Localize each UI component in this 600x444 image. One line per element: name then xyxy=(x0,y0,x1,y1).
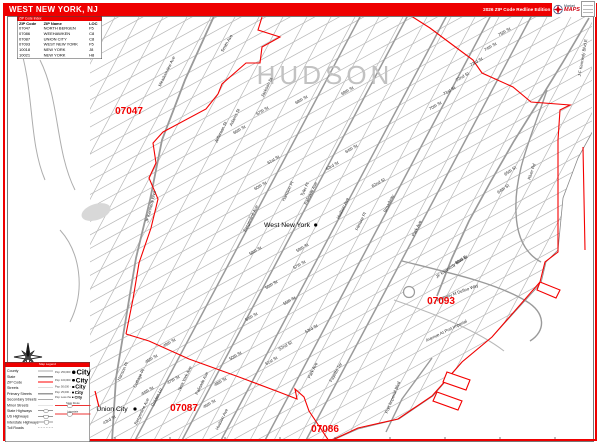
route-line-swatch xyxy=(55,414,91,415)
legend-line-item: State Highways xyxy=(7,408,53,414)
street-label: JF Kennedy Blvd xyxy=(144,190,157,223)
zip-code-label: 07087 xyxy=(170,403,198,414)
legend-city-item: Pop: Less than 25,000City xyxy=(55,395,91,400)
us-hwy-line-swatch xyxy=(38,416,53,417)
legend-line-label: US Highways xyxy=(7,414,29,419)
street-label: Hudson Ave xyxy=(214,407,229,430)
minor-line-swatch xyxy=(38,405,53,406)
city-dot-icon xyxy=(72,392,74,394)
legend-line-item: Interstate Highways xyxy=(7,419,53,425)
publisher-logo: Market MAPS xyxy=(552,1,596,17)
legend-route-item: State Route xyxy=(55,402,91,408)
population-range-label: Pop: 100,000 - 249,999 xyxy=(55,379,71,382)
legend-city-item: Pop: 100,000 - 249,999City xyxy=(55,377,91,385)
county-label: HUDSON xyxy=(257,60,394,90)
zip-table-cell: NEW YORK xyxy=(42,53,87,58)
population-range-label: Pop: 25,000 - 49,999 xyxy=(55,391,71,394)
zip-table-row: 10021NEW YORKH8 xyxy=(18,53,102,58)
toll-line-swatch xyxy=(38,428,53,429)
street-label: 49th St xyxy=(162,337,177,349)
street-label: J F Kennedy Blvd E xyxy=(577,39,589,77)
legend-line-label: County xyxy=(7,369,18,374)
street-label: 61st St xyxy=(266,154,281,165)
zip-code-wall-map-page: HUDSON75th St74th St73rd St72nd St71st S… xyxy=(0,0,600,444)
interstate-line-swatch xyxy=(39,422,53,423)
secondary-line-swatch xyxy=(38,399,53,400)
street-label: 58th St xyxy=(248,245,263,257)
street-label: 68th St xyxy=(294,94,309,106)
city-dot-icon xyxy=(72,397,74,399)
zip-code-label: 07047 xyxy=(115,106,143,117)
street-label: River Rd xyxy=(527,162,537,180)
population-range-label: Pop: 250,000 and Above xyxy=(55,371,71,374)
legend-line-item: Toll Roads xyxy=(7,425,53,431)
street-label: Filmore Pl xyxy=(354,212,367,232)
street-label: 52nd St xyxy=(278,339,294,351)
city-dot-icon xyxy=(133,407,136,410)
county-line-swatch xyxy=(38,370,53,371)
page-title: WEST NEW YORK, NJ xyxy=(9,3,98,16)
legend-line-label: ZIP Code xyxy=(7,380,22,385)
city-label: Union City xyxy=(96,406,128,413)
street-label: 62nd St xyxy=(371,176,387,188)
globe-star-icon xyxy=(553,3,563,16)
street-label: Park Ave xyxy=(307,361,319,379)
street-label: Fayette Ter xyxy=(328,361,343,383)
street-label: 54th St xyxy=(244,311,259,323)
legend-line-label: Secondary Streets xyxy=(7,397,37,402)
street-label: Smith Ave xyxy=(220,33,234,53)
street-label: 50th St xyxy=(228,350,243,362)
publisher-info-box xyxy=(581,1,595,17)
city-symbol-label: City xyxy=(75,395,83,400)
population-range-label: Pop: 50,000 - 99,999 xyxy=(55,386,71,389)
city-dot-icon xyxy=(72,371,76,375)
zip-code-label: 07086 xyxy=(311,424,339,435)
title-banner: WEST NEW YORK, NJ 2026 ZIP Code Redline … xyxy=(3,3,554,16)
legend-line-label: Interstate Highways xyxy=(7,420,39,425)
street-label: Port Imperial Blvd xyxy=(384,380,402,414)
zip-code-index-table: ZIP Code Index ZIP Code ZIP Name LOC 070… xyxy=(17,16,101,63)
zip-code-label: 07093 xyxy=(427,296,455,307)
legend-line-label: Streets xyxy=(7,386,18,391)
route-line-swatch xyxy=(55,405,91,406)
zip-table-cell: 10021 xyxy=(18,53,43,58)
street-label: Hudson Ave xyxy=(335,196,350,219)
zip-line-swatch xyxy=(38,382,53,383)
edition-label: 2026 ZIP Code Redline Edition xyxy=(483,6,550,13)
street-label: Bergenline Ave xyxy=(242,204,259,233)
legend-route-item: Interstate xyxy=(55,411,91,417)
map-legend: Map Legend CountyStateZIP CodeStreetsPri… xyxy=(5,362,89,441)
population-range-label: Pop: Less than 25,000 xyxy=(55,396,71,399)
street-label: 64th St xyxy=(496,182,511,194)
city-symbol-label: City xyxy=(76,377,88,385)
street-label: Jefferson St xyxy=(213,120,228,143)
legend-city-item: Pop: 250,000 and AboveCity xyxy=(55,368,91,377)
legend-line-label: State xyxy=(7,374,15,379)
legend-line-label: State Highways xyxy=(7,408,32,413)
legend-line-label: Primary Streets xyxy=(7,391,32,396)
state-hwy-line-swatch xyxy=(38,410,53,411)
primary-line-swatch xyxy=(38,393,53,395)
street-label: Bergenline Ave xyxy=(133,397,150,426)
street-label: 63rd St xyxy=(325,160,340,172)
street-label: 44th St xyxy=(140,385,155,397)
state-line-swatch xyxy=(38,376,53,378)
legend-line-label: Minor Streets xyxy=(7,403,28,408)
legend-line-label: Toll Roads xyxy=(7,426,24,431)
street-label: Meadowview Ave xyxy=(157,55,176,88)
city-dot-icon xyxy=(314,223,317,226)
city-dot-icon xyxy=(72,379,75,382)
city-label: West New York xyxy=(264,222,311,229)
zip-table-cell: H8 xyxy=(88,53,102,58)
brand-bottom-text: MAPS xyxy=(564,8,580,14)
street-label: 75th St xyxy=(497,26,512,38)
zip-table-row: 07086WEEHAWKENC8 xyxy=(18,31,102,36)
street-label: Cottage Pl xyxy=(132,368,145,388)
street-line-swatch xyxy=(38,388,53,389)
brand-name: Market MAPS xyxy=(564,5,580,14)
city-dot-icon xyxy=(72,386,74,388)
city-symbol-label: City xyxy=(77,368,91,377)
